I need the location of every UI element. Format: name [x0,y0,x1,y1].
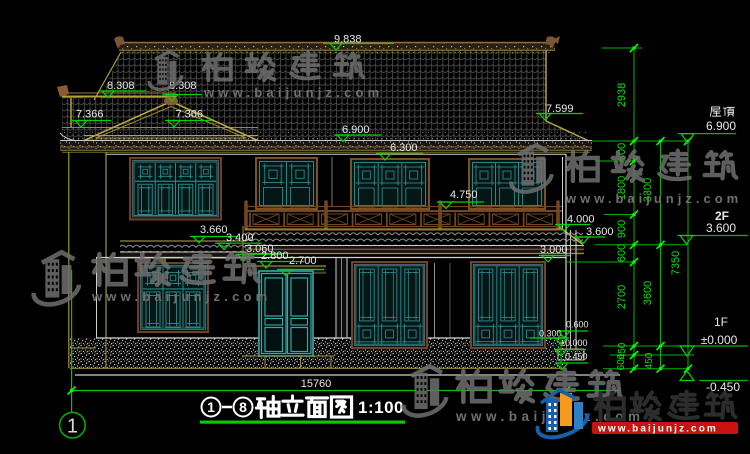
svg-text:1: 1 [67,416,78,438]
svg-text:7.366: 7.366 [76,109,104,121]
svg-text:15760: 15760 [301,378,332,390]
svg-text:±0.000: ±0.000 [560,338,587,348]
svg-text:±0.000: ±0.000 [701,333,738,347]
svg-text:www.baijunjz.com: www.baijunjz.com [203,85,383,100]
svg-text:8: 8 [239,399,247,415]
svg-text:6.900: 6.900 [706,119,736,133]
svg-text:2938: 2938 [616,83,628,107]
svg-text:600: 600 [616,244,628,262]
svg-text:3.600: 3.600 [706,221,736,235]
svg-text:www.baijunjz.com: www.baijunjz.com [597,424,718,435]
svg-text:1: 1 [207,399,215,415]
svg-text:600: 600 [616,353,627,370]
svg-text:0.300: 0.300 [539,329,562,339]
svg-text:6.300: 6.300 [390,142,418,154]
svg-text:1F: 1F [714,315,728,329]
svg-text:3.600: 3.600 [586,226,614,238]
svg-text:8.308: 8.308 [107,80,135,92]
svg-text:2.800: 2.800 [261,250,289,262]
svg-text:4.000: 4.000 [567,214,595,226]
svg-text:www.baijunjz.com: www.baijunjz.com [91,289,271,304]
svg-text:900: 900 [616,220,628,238]
svg-text:0.450: 0.450 [565,352,588,362]
svg-text:1:100: 1:100 [358,398,404,417]
svg-text:3600: 3600 [642,281,654,305]
svg-text:450: 450 [644,352,655,369]
svg-text:7350: 7350 [670,251,682,275]
svg-text:2.700: 2.700 [289,255,317,267]
svg-text:3.000: 3.000 [540,244,568,256]
svg-text:www.baijunjz.com: www.baijunjz.com [565,191,742,206]
svg-text:6.900: 6.900 [342,124,370,136]
svg-text:4.750: 4.750 [450,189,478,201]
svg-text:2700: 2700 [616,285,628,309]
svg-text:0.600: 0.600 [566,320,589,330]
svg-text:7.366: 7.366 [176,109,204,121]
svg-text:3.660: 3.660 [200,224,228,236]
